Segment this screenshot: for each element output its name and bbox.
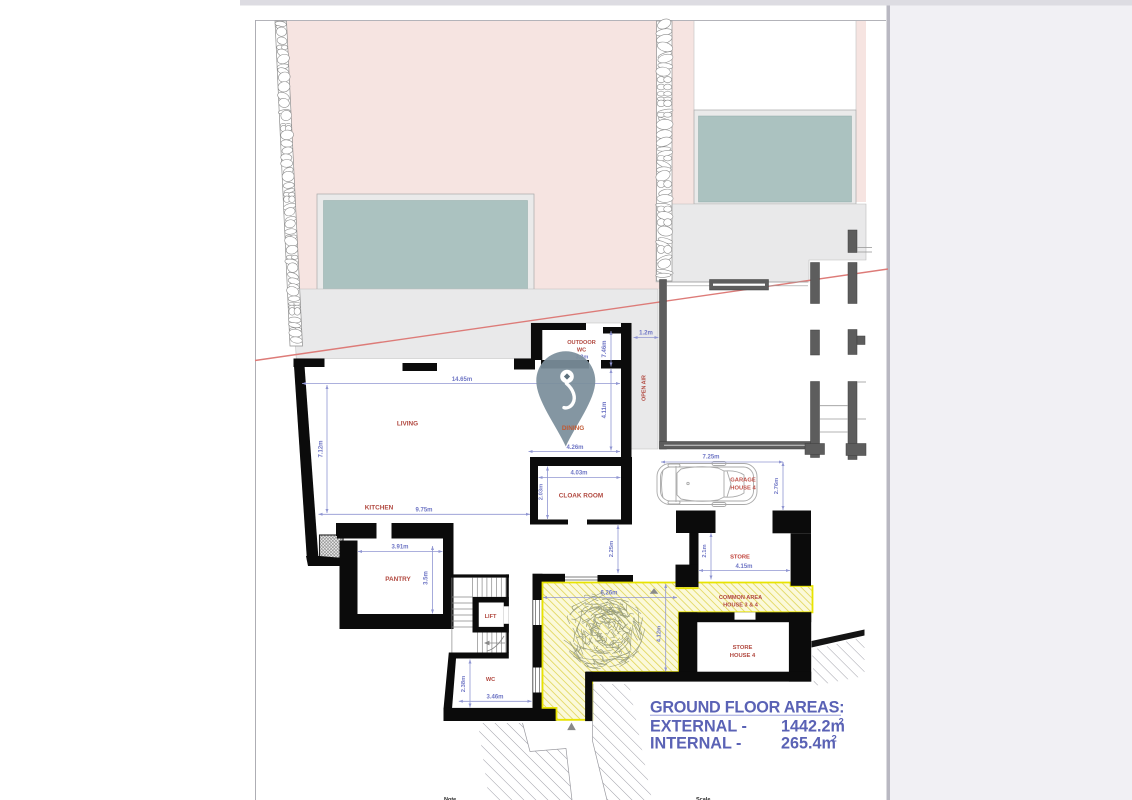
svg-text:STORE: STORE: [730, 555, 750, 561]
svg-text:7.25m: 7.25m: [702, 455, 719, 461]
svg-text:2.03m: 2.03m: [539, 484, 545, 500]
svg-text:INTERNAL -: INTERNAL -: [650, 735, 741, 753]
svg-text:4.26m: 4.26m: [566, 445, 583, 451]
svg-text:6.26m: 6.26m: [600, 591, 617, 597]
svg-text:LIVING: LIVING: [397, 421, 418, 428]
svg-text:7.46m: 7.46m: [602, 340, 608, 357]
svg-text:WC: WC: [486, 677, 495, 683]
svg-text:9.75m: 9.75m: [415, 508, 432, 514]
svg-text:PANTRY: PANTRY: [385, 576, 411, 583]
svg-text:3.91m: 3.91m: [391, 545, 408, 551]
svg-text:4.11m: 4.11m: [602, 402, 608, 419]
svg-text:2.38m: 2.38m: [461, 676, 467, 692]
svg-text:4.03m: 4.03m: [570, 471, 587, 477]
svg-text:GROUND FLOOR AREAS:: GROUND FLOOR AREAS:: [650, 699, 844, 717]
svg-text:DINING: DINING: [562, 425, 584, 432]
svg-text:WC: WC: [577, 348, 586, 354]
svg-text:EXTERNAL -: EXTERNAL -: [650, 718, 747, 736]
svg-text:4.15m: 4.15m: [735, 564, 752, 570]
svg-text:LIFT: LIFT: [485, 614, 497, 620]
svg-text:3.46m: 3.46m: [486, 695, 503, 701]
svg-text:2.1m: 2.1m: [702, 544, 708, 557]
svg-text:2.76m: 2.76m: [774, 478, 780, 494]
svg-text:2: 2: [832, 734, 837, 745]
svg-text:3.5m: 3.5m: [424, 571, 430, 585]
svg-text:HOUSE 3 & 4: HOUSE 3 & 4: [723, 603, 759, 609]
svg-text:HOUSE 4: HOUSE 4: [730, 653, 756, 659]
svg-text:1.2m: 1.2m: [639, 331, 653, 337]
svg-text:COMMON AREA: COMMON AREA: [719, 595, 762, 601]
svg-text:CLOAK ROOM: CLOAK ROOM: [559, 493, 603, 500]
svg-text:GARAGE: GARAGE: [730, 478, 756, 484]
svg-text:OUTDOOR: OUTDOOR: [567, 340, 596, 346]
svg-text:4.12m: 4.12m: [657, 626, 663, 642]
svg-text:2: 2: [839, 717, 844, 728]
svg-text:STORE: STORE: [733, 645, 753, 651]
svg-text:7.12m: 7.12m: [319, 440, 325, 457]
svg-text:KITCHEN: KITCHEN: [365, 505, 394, 512]
svg-text:OPEN AIR: OPEN AIR: [642, 375, 648, 401]
svg-text:2.25m: 2.25m: [609, 541, 615, 557]
svg-text:14.65m: 14.65m: [452, 377, 472, 383]
svg-text:265.4m: 265.4m: [781, 735, 836, 753]
svg-text:HOUSE 4: HOUSE 4: [730, 486, 756, 492]
